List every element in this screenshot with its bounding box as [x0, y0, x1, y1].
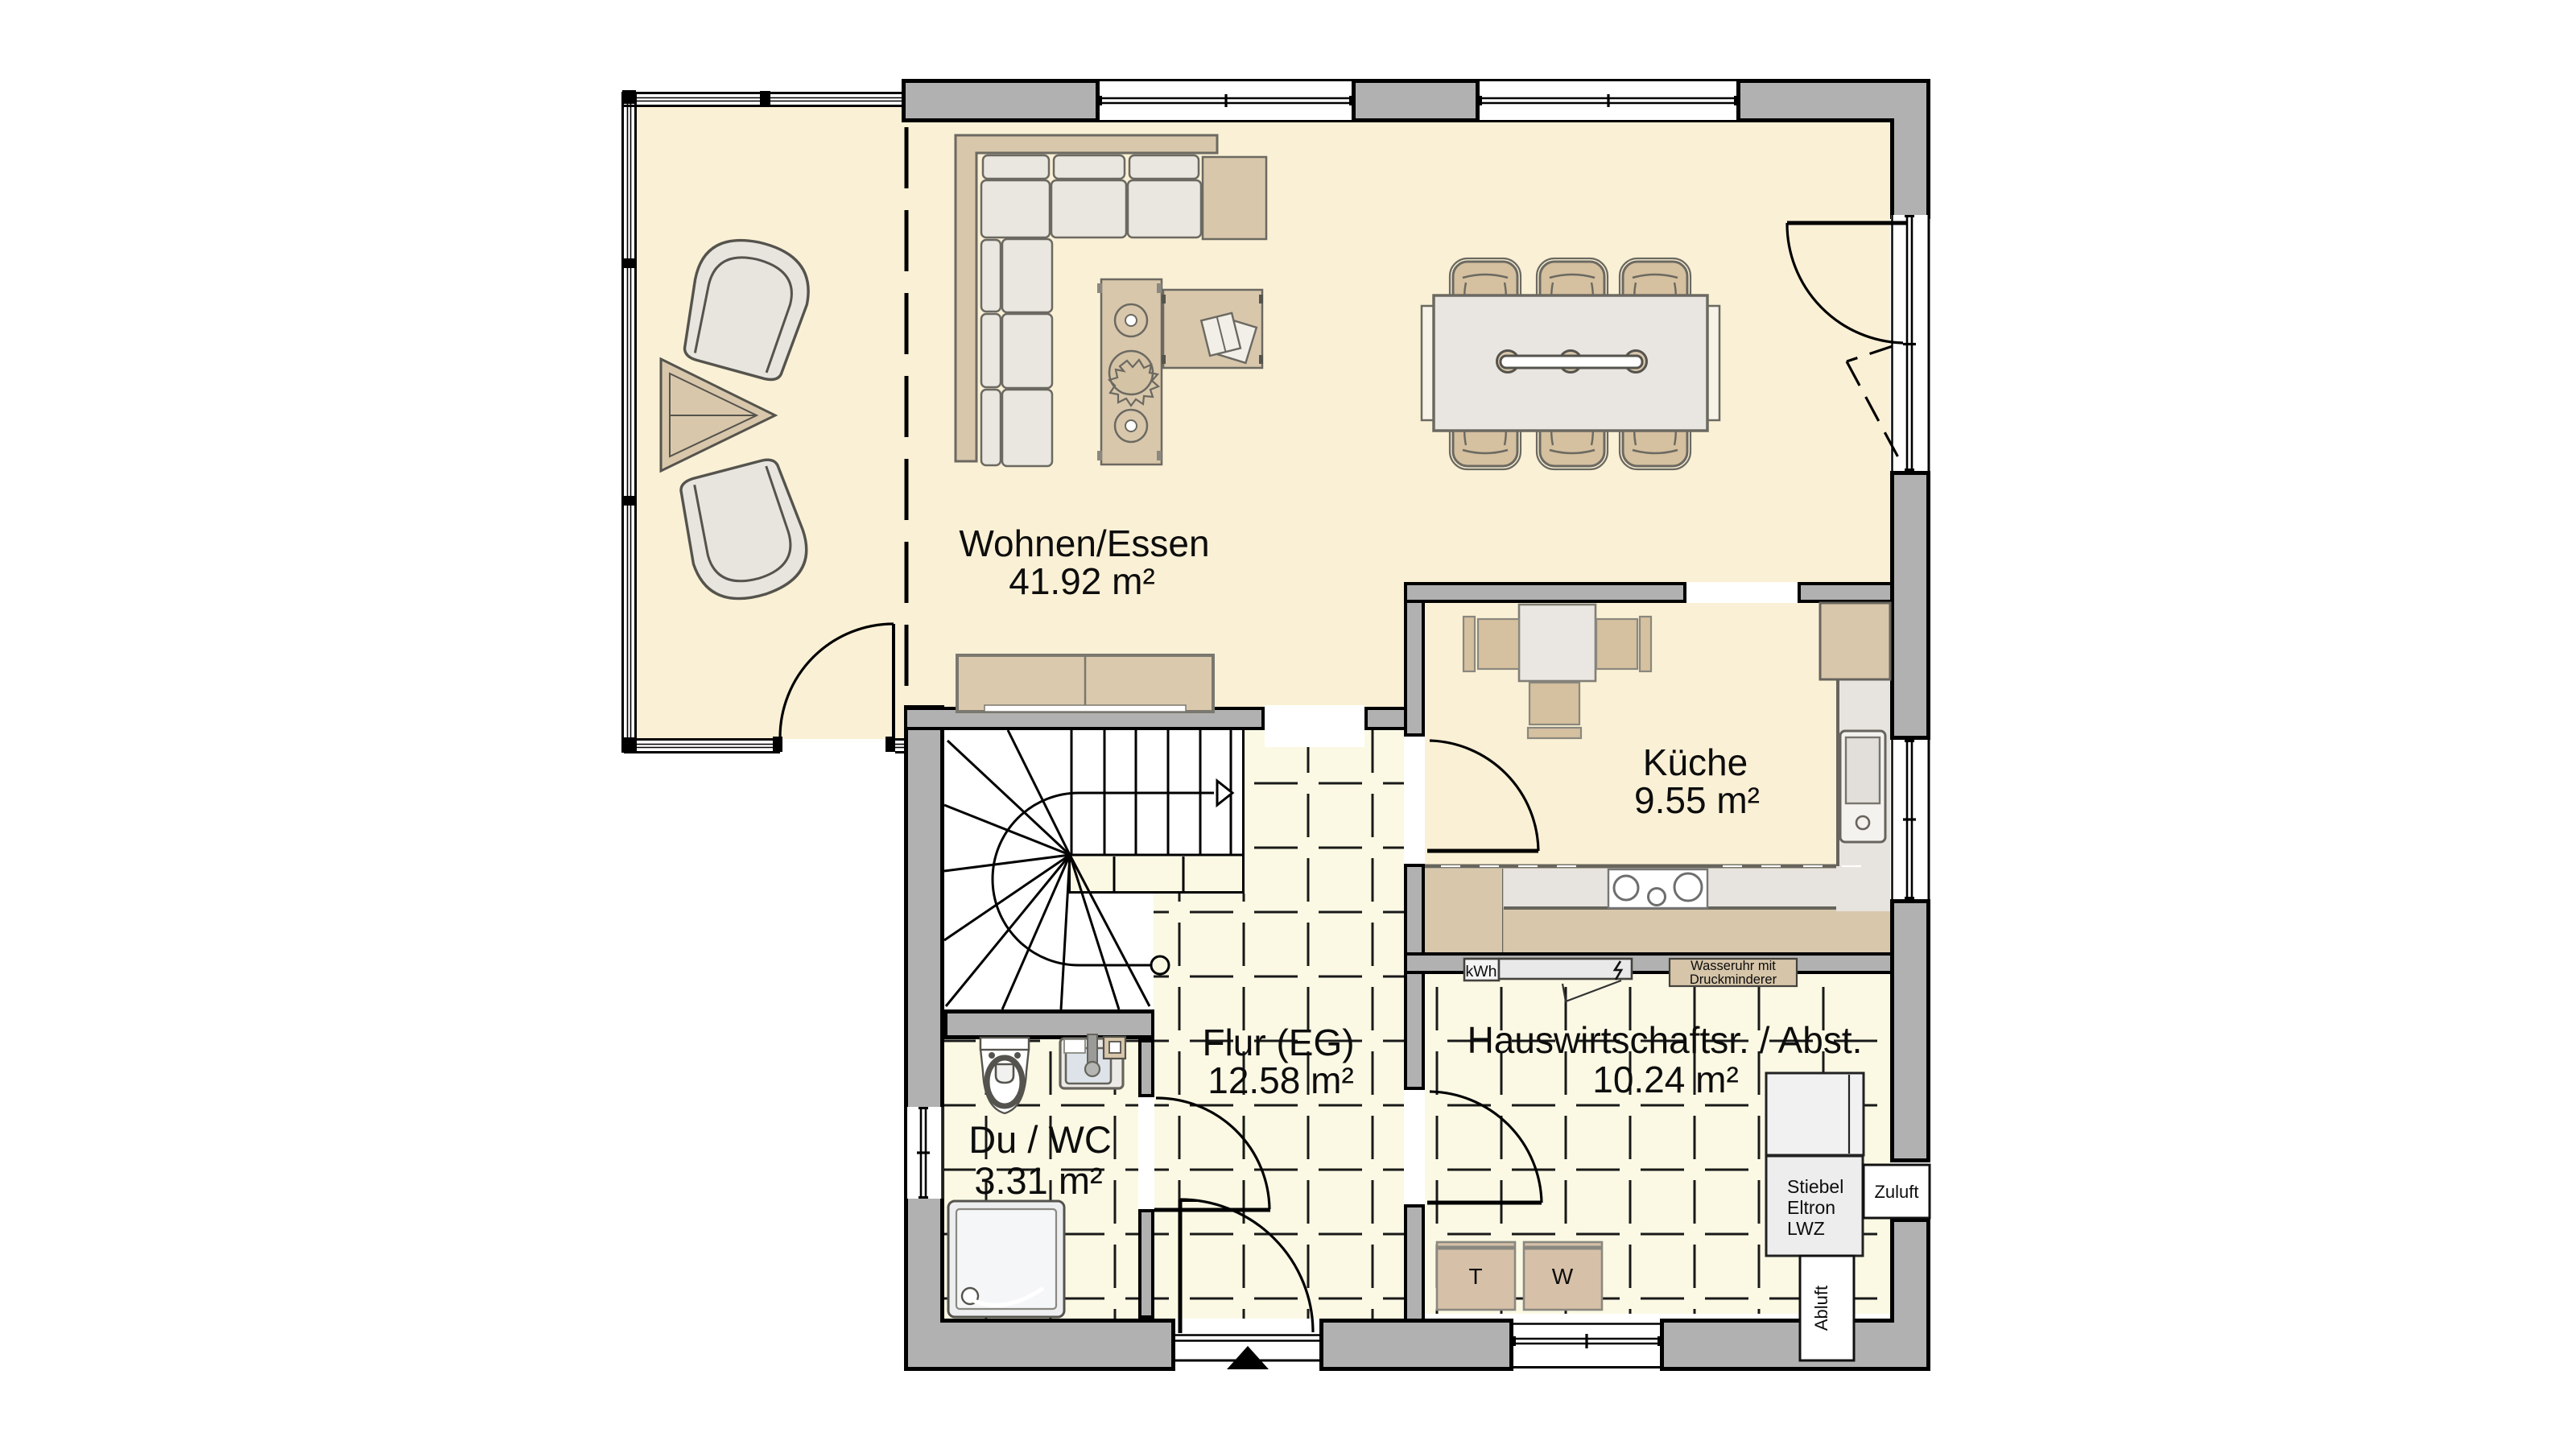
svg-text:Küche: Küche [1643, 741, 1748, 783]
svg-text:Du / WC: Du / WC [968, 1118, 1112, 1161]
svg-text:Druckminderer: Druckminderer [1690, 972, 1777, 987]
svg-text:W: W [1552, 1264, 1574, 1289]
svg-text:kWh: kWh [1466, 963, 1497, 980]
svg-text:Hauswirtschaftsr. / Abst.: Hauswirtschaftsr. / Abst. [1468, 1019, 1863, 1061]
svg-text:9.55 m²: 9.55 m² [1634, 779, 1760, 821]
svg-text:Wohnen/Essen: Wohnen/Essen [959, 522, 1209, 564]
svg-text:Zuluft: Zuluft [1874, 1182, 1918, 1202]
svg-text:T: T [1468, 1264, 1482, 1289]
svg-text:3.31 m²: 3.31 m² [974, 1159, 1102, 1202]
svg-text:Wasseruhr mit: Wasseruhr mit [1690, 959, 1776, 973]
svg-text:Flur (EG): Flur (EG) [1202, 1022, 1354, 1063]
svg-text:Eltron: Eltron [1787, 1197, 1835, 1218]
svg-text:Stiebel: Stiebel [1787, 1176, 1843, 1197]
svg-text:LWZ: LWZ [1787, 1218, 1825, 1239]
svg-text:41.92 m²: 41.92 m² [1009, 560, 1155, 602]
svg-text:12.58 m²: 12.58 m² [1207, 1059, 1354, 1101]
svg-text:10.24 m²: 10.24 m² [1592, 1059, 1739, 1100]
svg-text:Abluft: Abluft [1811, 1286, 1831, 1331]
